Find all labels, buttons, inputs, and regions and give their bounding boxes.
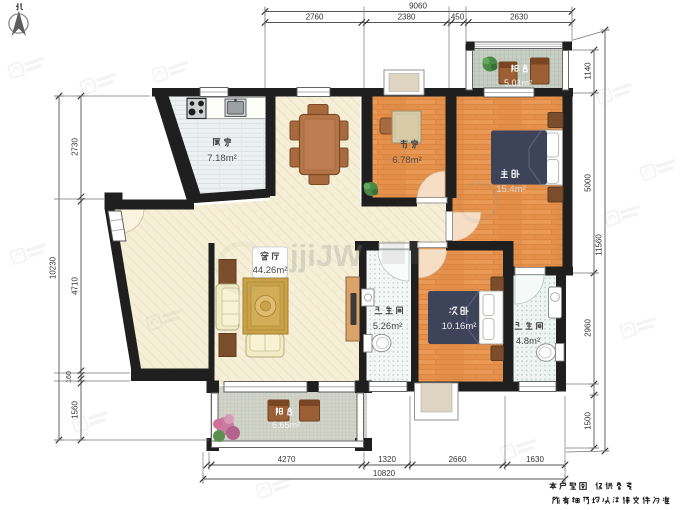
svg-text:6.65m²: 6.65m² bbox=[272, 420, 300, 430]
svg-text:4710: 4710 bbox=[71, 277, 80, 295]
svg-text:2760: 2760 bbox=[306, 13, 324, 22]
svg-text:10820: 10820 bbox=[373, 469, 396, 478]
svg-text:7.18m²: 7.18m² bbox=[207, 153, 237, 164]
svg-text:2730: 2730 bbox=[71, 138, 80, 156]
svg-text:2960: 2960 bbox=[584, 319, 593, 337]
svg-text:1630: 1630 bbox=[526, 455, 544, 464]
svg-text:2660: 2660 bbox=[449, 455, 467, 464]
svg-text:2630: 2630 bbox=[510, 13, 528, 22]
svg-text:4.8m²: 4.8m² bbox=[516, 336, 540, 347]
svg-text:44.26m²: 44.26m² bbox=[253, 265, 288, 276]
svg-text:10.16m²: 10.16m² bbox=[442, 321, 477, 332]
svg-text:4270: 4270 bbox=[278, 455, 296, 464]
svg-text:450: 450 bbox=[451, 13, 465, 22]
svg-text:1140: 1140 bbox=[584, 62, 593, 80]
svg-text:5.26m²: 5.26m² bbox=[373, 321, 403, 332]
svg-text:10230: 10230 bbox=[49, 256, 58, 279]
svg-text:2380: 2380 bbox=[398, 13, 416, 22]
svg-text:1500: 1500 bbox=[584, 412, 593, 430]
svg-text:9060: 9060 bbox=[409, 2, 427, 11]
svg-text:5.01m²: 5.01m² bbox=[504, 78, 532, 88]
svg-text:15.4m²: 15.4m² bbox=[496, 184, 526, 195]
svg-text:1560: 1560 bbox=[71, 401, 80, 419]
svg-text:6.78m²: 6.78m² bbox=[392, 155, 422, 166]
svg-text:1320: 1320 bbox=[378, 455, 396, 464]
svg-text:11560: 11560 bbox=[595, 234, 604, 256]
svg-text:5000: 5000 bbox=[584, 174, 593, 192]
svg-text:jjiJW: jjiJW bbox=[289, 238, 363, 273]
